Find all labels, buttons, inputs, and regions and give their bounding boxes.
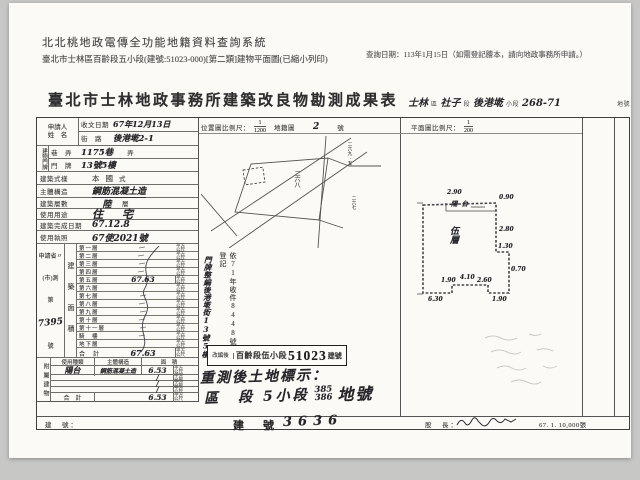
map-parcel-label: 二六八 <box>293 170 299 188</box>
area-section-label: 建築面積 <box>65 244 77 357</box>
building-area-section: 申請省〃 (市)測 第 7395 號 建築面積 第一層平方公尺 第二層平方公尺 … <box>37 244 198 358</box>
divider-map-plan <box>400 118 401 416</box>
survey-form: 申請人 姓 名 收文日期 67年12月13日 街 路 後港墘2-1 建物門牌 <box>36 117 630 430</box>
floor-rows: 第一層平方公尺 第二層平方公尺 第三層平方公尺 第四層平方公尺 第五層67.63… <box>77 244 198 357</box>
map-sheet-suffix: 號 <box>337 122 344 132</box>
dim-label: 2.60 <box>477 277 492 284</box>
annex-section: 附屬建物 使用種類 主體構造 面 積 陽台 鋼筋混凝土造 6.53 平方公尺 <box>37 358 198 401</box>
complete-date-label: 建築完成日期 <box>37 220 92 230</box>
subsection-suffix: 小段 <box>506 99 519 108</box>
floor-label: 第一層 <box>77 244 111 252</box>
sidebar-no-suffix: 號 <box>47 341 53 350</box>
query-date: 查詢日期：113年1月15日（如需登記謄本，請向地政事務所申請。） <box>366 49 587 60</box>
floor-label: 第十一層 <box>77 324 111 332</box>
sidebar-no-value: 7395 <box>38 317 64 330</box>
dim-label: 6.30 <box>428 296 443 303</box>
resurvey-prefix: 區 段 5小段 <box>204 384 310 408</box>
style-label: 建築式樣 <box>37 173 92 183</box>
dim-label: 1.90 <box>492 296 507 303</box>
street-label: 街 路 <box>79 133 113 143</box>
form-title: 臺北市士林地政事務所建築改良物勘測成果表 <box>48 89 398 110</box>
sidebar-line2: (市)測 <box>43 273 59 282</box>
renumber-section: 百齡段伍小段 <box>234 350 287 361</box>
location-scale-den: 1200 <box>254 126 266 134</box>
divider-right-col1 <box>582 118 583 416</box>
floor-label: 第七層 <box>77 292 111 300</box>
sidebar-line1: 申請省〃 <box>38 251 62 260</box>
dim-label: 0.90 <box>499 194 514 201</box>
handwritten-slash-curve <box>111 244 176 358</box>
floor-label: 第六層 <box>77 284 111 292</box>
location-scale-fraction: 1 1200 <box>254 120 266 134</box>
annex-type: 陽台 <box>51 365 95 376</box>
chief-label: 股 長： <box>425 419 459 429</box>
usage-label: 使用用途 <box>37 209 92 219</box>
map-neighbor-bottom-label: 二六七 <box>351 196 357 210</box>
dim-label: 1.30 <box>498 243 513 250</box>
divider-right-col2 <box>614 118 615 416</box>
location-map: 二六八 二六九-五 二六七 <box>201 136 397 248</box>
registration-note: 依71年收件8448號登記 <box>218 252 238 352</box>
system-title: 北北桃地政電傳全功能地籍資料查詢系統 <box>42 34 267 50</box>
dim-label: 0.70 <box>511 266 526 273</box>
dim-label: 1.90 <box>441 277 456 284</box>
subsection-value: 後港墘 <box>473 94 503 109</box>
location-scale-num: 1 <box>259 120 262 126</box>
complete-date-value: 67.12.8 <box>92 220 130 230</box>
bottom-center-value: 3636 <box>283 413 344 430</box>
map-sheet-label: 地籍圖 <box>274 122 295 132</box>
area-unit: 平方公尺 <box>176 340 187 348</box>
annex-structure: 鋼筋混凝土造 <box>95 366 142 375</box>
floor-label: 第十層 <box>77 316 111 324</box>
applicant-label-2: 姓 名 <box>48 132 68 140</box>
plan-scale-fraction: 1 200 <box>464 120 473 134</box>
style-value: 本國 <box>92 173 119 184</box>
resurvey-parcel-bottom: 386 <box>315 393 333 402</box>
floor-label: 騎 樓 <box>77 332 111 340</box>
renumber-label: 改編後 <box>208 353 234 359</box>
print-info: 67. 1. 10,000張 <box>539 419 587 429</box>
parcel-suffix: 地號 <box>617 99 630 108</box>
lane-suffix: 弄 <box>127 147 134 157</box>
pencil-notes <box>477 330 582 398</box>
annex-header-structure: 主體構造 <box>95 358 142 366</box>
scanned-document-view: 北北桃地政電傳全功能地籍資料查詢系統 查詢日期：113年1月15日（如需登記謄本… <box>0 0 640 480</box>
floor-label: 第九層 <box>77 308 111 316</box>
dim-label: 2.80 <box>499 226 514 233</box>
floor-label: 第二層 <box>77 252 111 260</box>
lane-value: 1175巷 <box>81 146 113 158</box>
number-label: 門 牌 <box>49 160 81 170</box>
plan-scale-num: 1 <box>467 120 470 126</box>
area-unit: 平方公尺 <box>176 349 187 357</box>
structure-label: 主體構造 <box>37 186 92 196</box>
doc-subtitle: 臺北市士林區百齡段五小段(建號:51023-000)[第二類]建物平面圖(已縮小… <box>42 53 328 65</box>
renumber-suffix: 建號 <box>328 351 342 361</box>
floor-plan: 陽台 伍層 2.90 0.90 2.80 1.30 0.70 1.90 2.60… <box>413 188 533 308</box>
street-value: 後港墘2-1 <box>113 132 154 144</box>
floor-label: 地下層 <box>77 340 111 348</box>
bottom-left-label: 建 號： <box>45 419 79 429</box>
renumber-value: 51023 <box>287 348 328 364</box>
district-suffix: 區 <box>431 99 438 108</box>
parcel-value: 268-71 <box>522 98 561 109</box>
area-unit: 平方公尺 <box>174 393 185 401</box>
floor-label: 第八層 <box>77 300 111 308</box>
renumber-box: 改編後 百齡段伍小段 51023 建號 <box>207 345 347 366</box>
dim-label: 2.90 <box>447 189 462 196</box>
license-value: 67使2021號 <box>92 231 148 244</box>
dim-label: 4.10 <box>460 274 475 281</box>
location-map-header: 位置圖比例尺： 1 1200 地籍圖 2 號 <box>201 120 344 134</box>
annex-total-value: 6.53 <box>142 393 174 402</box>
receive-date-label: 收文日期 <box>79 119 113 129</box>
floor-plan-drawing <box>413 188 533 308</box>
annex-header-area: 面 積 <box>142 358 196 366</box>
balcony-label: 陽台 <box>451 198 472 208</box>
receive-date-value: 67年12月13日 <box>113 119 170 130</box>
address-group-label: 建物門牌 <box>37 146 49 171</box>
location-line: 士林 區 社子 段 後港墘 小段 268-71 地號 <box>408 94 630 109</box>
resurvey-parcel-numbers: 385 386 <box>314 385 332 403</box>
plan-scale-label: 平面圖比例尺： <box>411 122 460 132</box>
plan-header: 平面圖比例尺： 1 200 <box>411 120 473 134</box>
license-label: 使用執照 <box>37 232 92 242</box>
building-info-table: 申請人 姓 名 收文日期 67年12月13日 街 路 後港墘2-1 建物門牌 <box>37 118 199 402</box>
annex-section-label: 附屬建物 <box>37 358 51 401</box>
sidebar-no-label: 第 <box>47 295 53 304</box>
lane-label: 巷 弄 <box>49 147 81 157</box>
annex-total-label: 合 計 <box>51 393 95 402</box>
resurvey-suffix: 地號 <box>337 380 374 405</box>
map-neighbor-top-label: 二六九-五 <box>347 142 353 165</box>
floor-number-label: 伍層 <box>447 226 460 244</box>
section-value: 社子 <box>441 94 461 109</box>
resurvey-note-line2: 區 段 5小段 385 386 地號 <box>204 380 374 410</box>
location-map-sketch <box>201 136 397 248</box>
district-value: 士林 <box>408 94 428 109</box>
floor-label: 第三層 <box>77 260 111 268</box>
floor-label: 第四層 <box>77 268 111 276</box>
chief-signature <box>455 415 517 430</box>
storeys-label: 建築層數 <box>37 198 92 208</box>
plan-scale-den: 200 <box>464 126 473 134</box>
floor-label: 第五層 <box>77 276 111 284</box>
floor-total-label: 合 計 <box>77 349 111 358</box>
applicant-label-1: 申請人 <box>48 124 68 132</box>
section-suffix: 段 <box>464 99 471 108</box>
style-suffix: 式 <box>119 173 126 183</box>
map-sheet-no: 2 <box>313 122 319 132</box>
number-value: 13號5樓 <box>81 159 116 171</box>
bottom-center-label: 建 號 <box>233 417 278 433</box>
location-scale-label: 位置圖比例尺： <box>201 122 250 132</box>
